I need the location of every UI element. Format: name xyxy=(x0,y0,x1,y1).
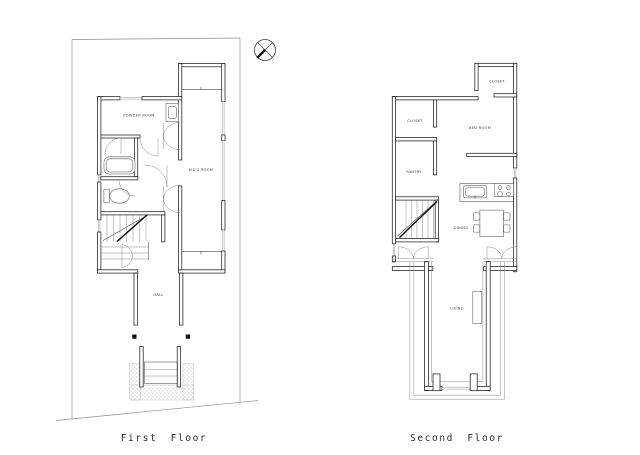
second-floor-plan: CLOSET CLOSET PANTRY BED ROOM DINING LIV… xyxy=(392,63,517,399)
room-label-bed-room: BED ROOM xyxy=(469,126,491,130)
closet-double-doors-upper xyxy=(163,122,180,149)
balcony-doors-right xyxy=(487,247,517,259)
first-floor-stairs xyxy=(101,215,149,261)
closet-double-doors-lower xyxy=(163,185,180,212)
powder-room-door-swing xyxy=(140,138,158,156)
first-floor-caption: First Floor xyxy=(121,433,208,444)
kitchen-counter xyxy=(460,183,514,201)
gravel-strip-bottom xyxy=(130,385,194,400)
window-mullion-right xyxy=(470,374,477,391)
room-label-living: LIVING xyxy=(450,307,464,311)
second-floor-stairs xyxy=(398,200,438,238)
room-label-powder-room: POWDER ROOM xyxy=(123,113,154,117)
living-sideboard xyxy=(473,292,482,324)
balcony-doors-left xyxy=(399,247,429,259)
window-mullion-left xyxy=(433,374,440,391)
site-boundary xyxy=(56,38,258,421)
second-floor-caption: Second Floor xyxy=(410,433,504,444)
floor-plan-sheet: POWDER ROOM KID'S ROOM HALL xyxy=(0,0,640,455)
room-label-closet-left: CLOSET xyxy=(407,119,423,123)
room-label-hall: HALL xyxy=(153,293,163,297)
gate-post-right xyxy=(186,335,190,339)
dining-table xyxy=(473,210,510,237)
room-label-closet-upper: CLOSET xyxy=(489,80,505,84)
toilet xyxy=(104,189,129,203)
floor-plan-drawing: POWDER ROOM KID'S ROOM HALL xyxy=(0,0,640,455)
bathtub xyxy=(104,157,135,174)
gate-post-left xyxy=(132,335,136,339)
kids-room-door-swing xyxy=(145,165,167,187)
vanity-sink xyxy=(166,104,179,122)
room-label-pantry: PANTRY xyxy=(406,170,422,174)
first-floor-plan: POWDER ROOM KID'S ROOM HALL xyxy=(56,38,258,421)
entry-porch xyxy=(145,362,178,384)
room-label-kids-room: KID'S ROOM xyxy=(189,168,213,172)
bathroom-door-swing xyxy=(105,138,121,154)
room-label-dining: DINING xyxy=(454,226,469,230)
north-arrow-icon xyxy=(255,40,276,61)
entry-door-swing xyxy=(122,245,132,268)
